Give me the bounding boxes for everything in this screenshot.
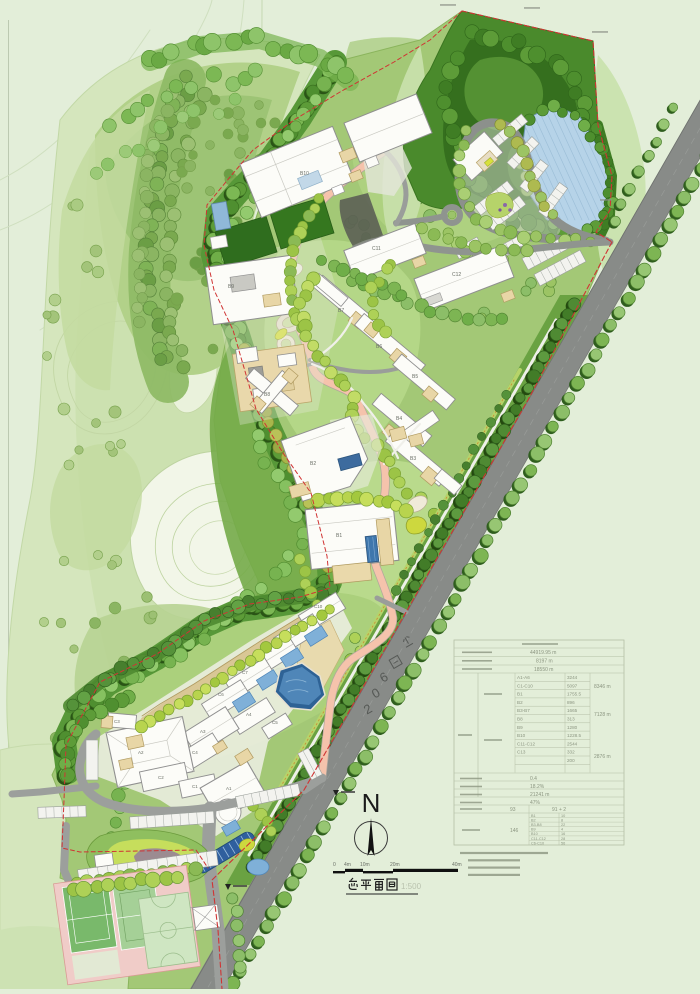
svg-text:313: 313: [567, 717, 575, 722]
svg-text:8346 m: 8346 m: [594, 684, 611, 690]
svg-text:896: 896: [567, 700, 575, 705]
svg-text:0: 0: [333, 862, 336, 868]
svg-text:2544: 2544: [567, 741, 578, 746]
svg-text:B9: B9: [228, 284, 234, 290]
svg-text:16: 16: [561, 832, 565, 836]
svg-text:C6-C10: C6-C10: [531, 841, 544, 845]
svg-text:B10: B10: [517, 733, 526, 738]
svg-text:1280: 1280: [567, 725, 578, 730]
svg-text:B5: B5: [412, 374, 418, 380]
svg-text:1228.5: 1228.5: [567, 733, 581, 738]
svg-text:8197 m: 8197 m: [536, 659, 553, 665]
svg-text:200: 200: [567, 758, 575, 763]
svg-text:C6: C6: [218, 692, 224, 697]
svg-text:1755.5: 1755.5: [567, 692, 581, 697]
svg-text:B9: B9: [517, 725, 523, 730]
svg-text:0.4: 0.4: [530, 776, 537, 782]
svg-text:C10: C10: [314, 604, 323, 609]
svg-text:47%: 47%: [530, 800, 541, 806]
svg-text:20m: 20m: [390, 862, 400, 868]
svg-text:A2: A2: [138, 750, 144, 755]
svg-text:B1: B1: [336, 533, 342, 539]
svg-text:91 + 2: 91 + 2: [552, 807, 566, 813]
svg-text:B3-B7: B3-B7: [517, 708, 530, 713]
svg-text:2876 m: 2876 m: [594, 754, 611, 760]
svg-text:10: 10: [561, 814, 565, 818]
svg-text:C13: C13: [517, 750, 526, 755]
svg-text:22: 22: [561, 823, 565, 827]
svg-text:C11-C12: C11-C12: [517, 741, 535, 746]
svg-text:C12: C12: [452, 272, 461, 278]
svg-text:18550 m: 18550 m: [534, 667, 553, 673]
svg-text:B8: B8: [517, 717, 523, 722]
svg-text:C2: C2: [158, 775, 164, 780]
svg-text:56: 56: [561, 841, 565, 845]
svg-text:1:500: 1:500: [401, 882, 422, 891]
svg-text:B9: B9: [531, 828, 536, 832]
svg-text:18.2%: 18.2%: [530, 784, 545, 790]
svg-text:N: N: [362, 788, 381, 818]
svg-text:A4: A4: [246, 712, 252, 717]
svg-text:A3: A3: [200, 729, 206, 734]
svg-text:B10: B10: [300, 171, 309, 177]
svg-text:B7: B7: [338, 308, 344, 314]
svg-text:C5: C5: [272, 720, 278, 725]
svg-text:C1-C10: C1-C10: [517, 683, 533, 688]
svg-text:B10: B10: [531, 832, 538, 836]
svg-text:B3: B3: [410, 456, 416, 462]
svg-text:C1: C1: [192, 784, 198, 789]
svg-text:7128 m: 7128 m: [594, 712, 611, 718]
svg-text:93: 93: [510, 807, 516, 813]
svg-text:21241 m: 21241 m: [530, 792, 549, 798]
svg-text:C3: C3: [114, 719, 120, 724]
svg-text:1665: 1665: [567, 708, 578, 713]
svg-text:B2: B2: [517, 700, 523, 705]
svg-text:B2: B2: [310, 461, 316, 467]
svg-text:B3-B8: B3-B8: [531, 823, 542, 827]
svg-text:B1: B1: [531, 814, 536, 818]
svg-text:B6: B6: [376, 344, 382, 350]
svg-text:B4: B4: [396, 416, 402, 422]
svg-text:146: 146: [510, 828, 519, 834]
svg-text:C4: C4: [192, 750, 198, 755]
svg-text:44919.95 m: 44919.95 m: [530, 650, 556, 656]
svg-text:C11: C11: [372, 246, 381, 252]
svg-text:B8: B8: [264, 392, 270, 398]
svg-text:4m: 4m: [344, 862, 351, 868]
svg-text:332: 332: [567, 750, 575, 755]
svg-text:10m: 10m: [360, 862, 370, 868]
svg-text:A1: A1: [226, 786, 232, 791]
svg-text:3244: 3244: [567, 675, 578, 680]
svg-text:5097: 5097: [567, 683, 578, 688]
svg-text:4: 4: [561, 828, 563, 832]
svg-text:B1: B1: [517, 692, 523, 697]
svg-text:C7: C7: [242, 670, 248, 675]
svg-text:40m: 40m: [452, 862, 462, 868]
svg-text:A1-A6: A1-A6: [517, 675, 530, 680]
